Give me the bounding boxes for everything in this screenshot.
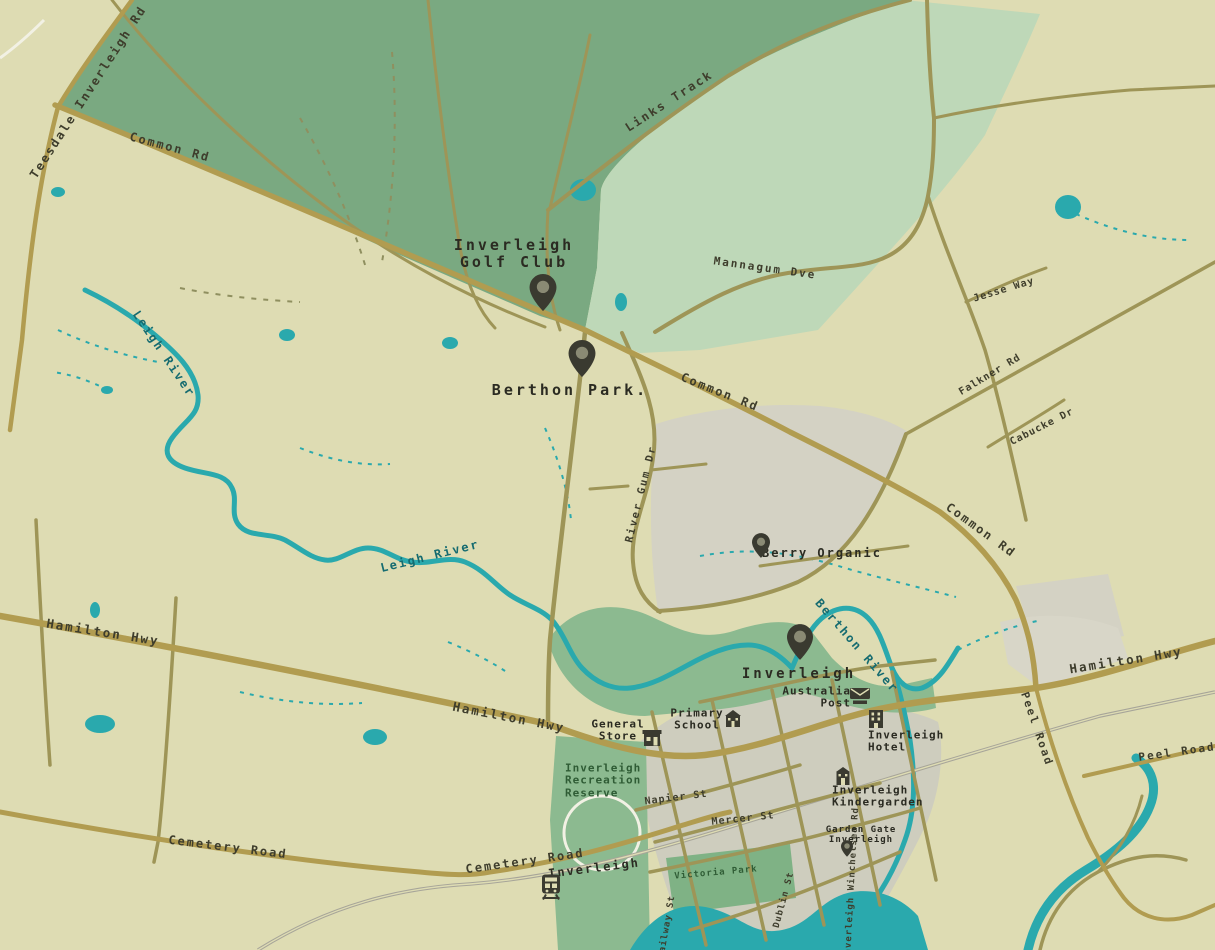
poi-hotel-line2: Hotel: [868, 742, 944, 754]
poi-golf-line2: Golf Club: [454, 254, 574, 271]
poi-reserve-line2: Recreation: [565, 775, 641, 787]
poi-label-berthon-park: Berthon Park.: [492, 381, 648, 399]
grey-patch-mid: [651, 405, 908, 611]
golf-club-map-pin-icon[interactable]: [530, 274, 557, 315]
poi-reserve-line3: Reserve: [565, 787, 641, 799]
hotel-icon: [868, 709, 884, 733]
poi-post-line2: Post: [782, 698, 851, 710]
poi-label-inverleigh-hotel: Inverleigh Hotel: [868, 730, 944, 755]
post-office-icon: [849, 687, 871, 709]
inverleigh-map-pin-icon[interactable]: [787, 624, 813, 664]
poi-label-recreation-reserve: Inverleigh Recreation Reserve: [565, 763, 641, 800]
kindergarden-icon: [834, 766, 852, 790]
map-canvas[interactable]: Teesdale Inverleigh Rd Common Rd Links T…: [0, 0, 1215, 950]
general-store-icon: [642, 729, 663, 751]
poi-kinder-line2: Kindergarden: [832, 797, 923, 809]
walking-track: [0, 20, 44, 58]
grey-patch-hwy: [1000, 616, 1128, 688]
poi-golf-line1: Inverleigh: [454, 237, 574, 254]
poi-label-inverleigh-golf-club: Inverleigh Golf Club: [454, 237, 574, 271]
poi-label-australia-post: Australia Post: [782, 686, 851, 711]
poi-label-general-store: General Store: [591, 719, 644, 744]
berthon-park-map-pin-icon[interactable]: [569, 340, 596, 381]
poi-label-primary-school: Primary School: [670, 708, 723, 733]
poi-garden-gate-line1: Garden Gate: [826, 825, 897, 835]
train-station-icon: [539, 874, 563, 905]
poi-label-inverleigh-town: Inverleigh: [742, 666, 856, 682]
poi-label-garden-gate: Garden Gate Inverleigh: [826, 825, 897, 845]
poi-garden-gate-line2: Inverleigh: [826, 835, 897, 845]
garden-gate-map-pin-icon[interactable]: [841, 840, 853, 861]
poi-label-berry-organic: Berry Organic: [762, 546, 882, 560]
berry-organic-map-pin-icon[interactable]: [752, 533, 770, 562]
primary-school-icon: [723, 709, 743, 733]
poi-school-line2: School: [670, 720, 723, 732]
poi-store-line2: Store: [591, 731, 644, 743]
